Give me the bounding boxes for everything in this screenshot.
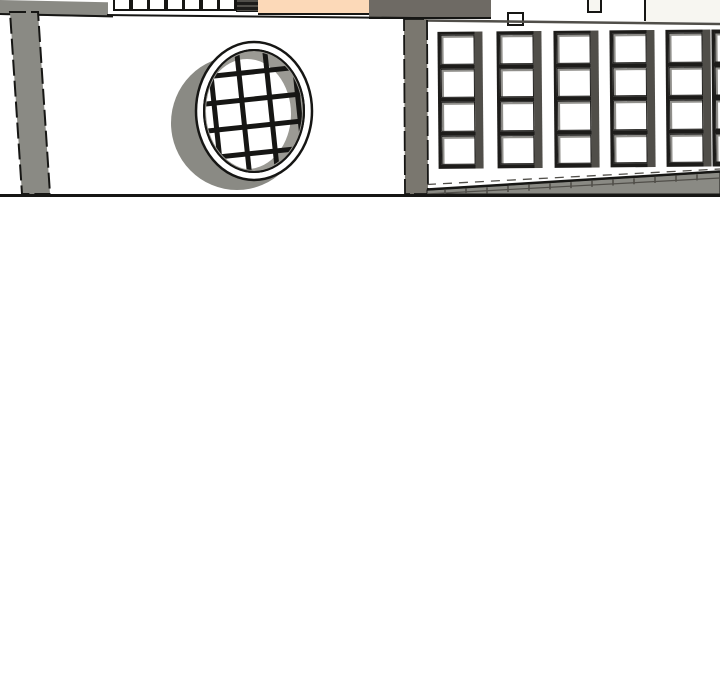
window-pane bbox=[557, 134, 591, 164]
vent-louver bbox=[236, 0, 260, 12]
clerestory-square bbox=[113, 0, 131, 11]
window-pane bbox=[500, 68, 534, 98]
window-pane bbox=[500, 135, 534, 165]
window-pane bbox=[669, 133, 703, 163]
clerestory-square bbox=[183, 0, 201, 11]
muntin-bar-vertical bbox=[233, 41, 253, 186]
window-pane bbox=[500, 101, 534, 131]
circular-window-inner-rim bbox=[204, 50, 304, 172]
window-column bbox=[437, 32, 483, 169]
window-pane bbox=[715, 133, 720, 163]
window-pane bbox=[556, 34, 590, 64]
window-pane bbox=[669, 66, 703, 96]
window-pane bbox=[441, 135, 475, 165]
clerestory-square bbox=[166, 0, 184, 11]
circular-window-lit-glass bbox=[203, 59, 291, 169]
muntin-bar-horizontal bbox=[197, 117, 317, 135]
muntin-bar-horizontal bbox=[194, 90, 314, 108]
model-viewport[interactable] bbox=[0, 0, 720, 700]
window-pane bbox=[441, 68, 475, 98]
peach-panel bbox=[258, 0, 369, 15]
window-column bbox=[711, 29, 720, 166]
circular-window-ring bbox=[196, 42, 312, 180]
window-pane bbox=[715, 99, 720, 129]
window-pane bbox=[440, 35, 474, 65]
window-column bbox=[609, 30, 655, 167]
window-pane bbox=[613, 67, 647, 97]
window-pane bbox=[669, 100, 703, 130]
window-pane bbox=[715, 66, 720, 96]
left-pillar bbox=[10, 12, 50, 194]
window-pane bbox=[557, 101, 591, 131]
window-pane bbox=[612, 33, 646, 63]
muntin-bar-vertical bbox=[261, 38, 281, 183]
muntin-bar-horizontal bbox=[199, 144, 319, 162]
clerestory-square bbox=[201, 0, 219, 11]
right-pillar bbox=[404, 19, 428, 194]
clerestory-square bbox=[131, 0, 149, 11]
circular-window-shadow bbox=[171, 56, 303, 190]
window-pane bbox=[557, 67, 591, 97]
muntin-bar-vertical bbox=[289, 35, 309, 180]
window-pane bbox=[441, 102, 475, 132]
clerestory-strip bbox=[108, 0, 413, 15]
section-ground-line bbox=[0, 194, 720, 197]
window-column bbox=[665, 30, 711, 167]
window-column bbox=[553, 31, 599, 168]
circular-window-muntin-grid bbox=[188, 34, 322, 191]
window-pane bbox=[613, 100, 647, 130]
window-pane bbox=[499, 34, 533, 64]
clerestory-square bbox=[218, 0, 236, 11]
window-pane bbox=[714, 32, 720, 62]
clerestory-row bbox=[113, 0, 243, 12]
strip-bottom-edge bbox=[107, 15, 413, 18]
muntin-bar-vertical bbox=[205, 44, 225, 189]
clerestory-square bbox=[148, 0, 166, 11]
window-pane bbox=[668, 33, 702, 63]
window-pane bbox=[613, 134, 647, 164]
circular-window-recess bbox=[204, 50, 304, 172]
right-facade bbox=[426, 0, 720, 196]
muntin-bar-horizontal bbox=[191, 63, 311, 81]
window-column bbox=[496, 31, 542, 168]
roof-bar-left bbox=[0, 0, 113, 17]
